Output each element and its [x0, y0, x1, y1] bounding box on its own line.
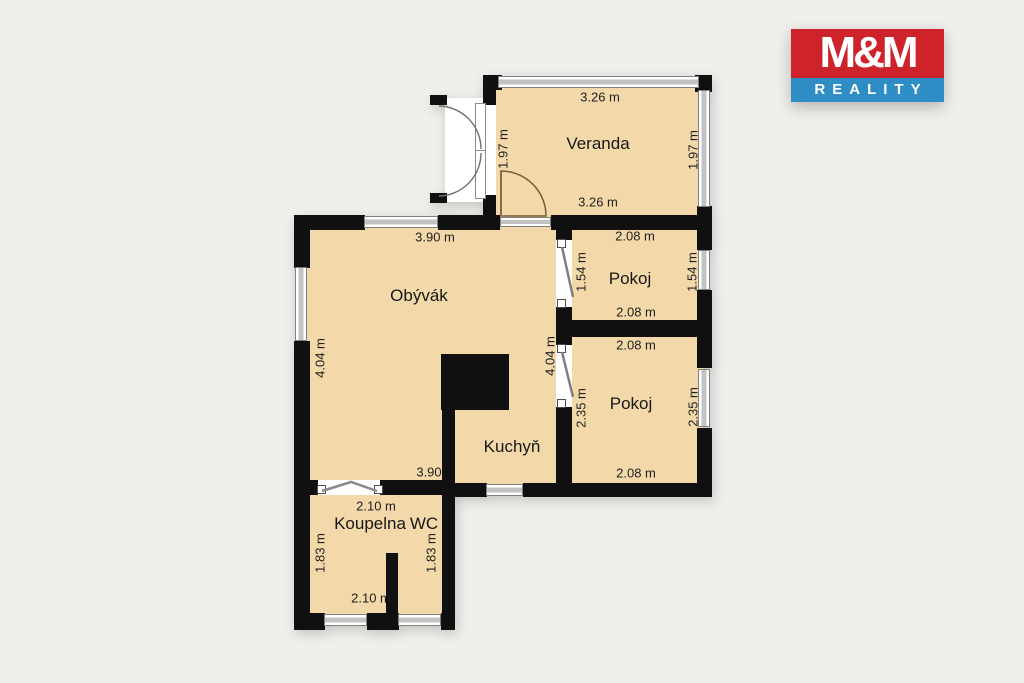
dim-pokoj-top-width-bottom: 2.08 m	[616, 305, 656, 320]
wall	[441, 613, 455, 630]
dim-pokoj-bottom-right: 2.35 m	[686, 387, 701, 427]
floorplan: 3.26 m Veranda 1.97 m 1.97 m 3.26 m 2.08…	[0, 0, 1024, 683]
floorplan-canvas: 3.26 m Veranda 1.97 m 1.97 m 3.26 m 2.08…	[0, 0, 1024, 683]
room-label-veranda: Veranda	[566, 134, 629, 154]
wall	[523, 483, 712, 497]
wall	[697, 215, 712, 250]
dim-pokoj-bottom-width-top: 2.08 m	[616, 338, 656, 353]
wall	[442, 410, 455, 613]
door-hinge	[557, 239, 566, 248]
wall	[294, 613, 325, 630]
room-label-pokoj-bottom: Pokoj	[610, 394, 653, 414]
entry-door-stub-top	[430, 95, 447, 105]
wall	[556, 407, 572, 497]
window-obyvak-top	[364, 216, 438, 228]
mm-reality-logo: M&M REALITY	[791, 29, 944, 102]
door-hinge	[557, 299, 566, 308]
room-label-kuchyn: Kuchyň	[484, 437, 541, 457]
window-wc-bottom	[398, 614, 441, 626]
door-opening-koupelna	[318, 480, 380, 495]
dim-veranda-top: 3.26 m	[580, 90, 620, 105]
dim-pokoj-bottom-left: 2.35 m	[574, 388, 589, 428]
wall	[294, 215, 365, 230]
wall-pokoj-divider	[556, 320, 712, 337]
dim-veranda-bottom: 3.26 m	[578, 195, 618, 210]
dim-koupelna-left: 1.83 m	[313, 533, 328, 573]
dim-koupelna-top: 2.10 m	[356, 499, 396, 514]
entry-door-leaf-top	[475, 103, 486, 151]
window-koupelna-bottom	[324, 614, 367, 626]
door-opening-pokoj-top	[556, 240, 572, 307]
dim-pokoj-bottom-width-bottom: 2.08 m	[616, 466, 656, 481]
window-obyvak-left	[295, 267, 307, 341]
door-hinge	[374, 485, 383, 494]
logo-subtitle: REALITY	[791, 78, 944, 102]
dim-koupelna-bottom: 2.10 m	[351, 591, 391, 606]
room-label-obyvak: Obývák	[390, 286, 448, 306]
window-veranda-top	[498, 76, 699, 88]
room-label-pokoj-top: Pokoj	[609, 269, 652, 289]
dim-veranda-right: 1.97 m	[686, 130, 701, 170]
dim-pokoj-top-width-top: 2.08 m	[615, 229, 655, 244]
wall	[697, 290, 712, 368]
room-label-wc: WC	[410, 514, 438, 534]
entry-door-leaf-bottom	[475, 150, 486, 199]
dim-pokoj-top-right: 1.54 m	[685, 252, 700, 292]
dim-koupelna-right: 1.83 m	[424, 533, 439, 573]
wall	[438, 215, 500, 230]
chimney-block	[441, 354, 509, 410]
dim-obyvak-bottom: 3.90	[416, 465, 441, 480]
entry-door-stub-bottom	[430, 193, 447, 203]
wall	[455, 483, 487, 497]
window-pokoj-top-right	[698, 250, 710, 290]
wall	[380, 480, 442, 495]
logo-title: M&M	[791, 29, 944, 78]
window-kuchyn-bottom	[486, 484, 523, 496]
dim-obyvak-left: 4.04 m	[313, 338, 328, 378]
room-label-koupelna: Koupelna	[334, 514, 406, 534]
door-hinge	[557, 344, 566, 353]
door-opening-pokoj-bottom	[556, 345, 572, 407]
wall	[556, 215, 572, 240]
dim-obyvak-top: 3.90 m	[415, 230, 455, 245]
dim-obyvak-right: 4.04 m	[543, 336, 558, 376]
wall	[367, 613, 399, 630]
dim-pokoj-top-left: 1.54 m	[574, 252, 589, 292]
wall	[294, 230, 310, 268]
door-hinge	[557, 399, 566, 408]
wall	[294, 480, 318, 495]
dim-veranda-left: 1.97 m	[496, 129, 511, 169]
wall	[697, 428, 712, 497]
door-threshold-veranda	[500, 217, 551, 227]
door-hinge	[317, 485, 326, 494]
